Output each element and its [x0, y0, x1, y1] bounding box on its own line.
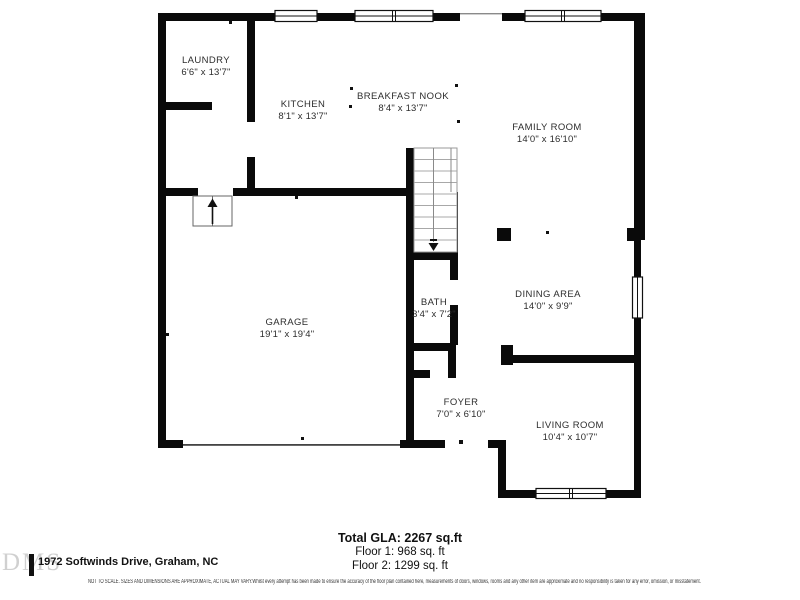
room-name: DINING AREA [515, 289, 581, 301]
logo-divider-bar [29, 554, 34, 576]
dimension-ticks [166, 21, 549, 444]
room-name: KITCHEN [278, 99, 327, 111]
room-label-bath: BATH 3'4" x 7'2" [412, 297, 456, 321]
room-label-family-room: FAMILY ROOM 14'0" x 16'10" [512, 122, 582, 146]
floor-plan-page: LAUNDRY 6'6" x 13'7" KITCHEN 8'1" x 13'7… [0, 0, 800, 600]
room-name: FAMILY ROOM [512, 122, 582, 134]
room-dims: 10'4" x 10'7" [536, 432, 604, 444]
room-name: LAUNDRY [181, 55, 230, 67]
garage-steps [193, 196, 232, 226]
room-label-breakfast-nook: BREAKFAST NOOK 8'4" x 13'7" [357, 91, 449, 115]
area-summary: Total GLA: 2267 sq.ft Floor 1: 968 sq. f… [338, 531, 462, 573]
floor2-area: Floor 2: 1299 sq. ft [338, 560, 462, 574]
property-address: 1972 Softwinds Drive, Graham, NC [38, 556, 218, 568]
room-dims: 3'4" x 7'2" [412, 309, 456, 321]
room-name: GARAGE [260, 317, 315, 329]
room-label-laundry: LAUNDRY 6'6" x 13'7" [181, 55, 230, 79]
front-door-tick [459, 440, 463, 444]
room-name: FOYER [436, 397, 485, 409]
room-name: LIVING ROOM [536, 420, 604, 432]
room-dims: 6'6" x 13'7" [181, 67, 230, 79]
room-dims: 7'0" x 6'10" [436, 409, 485, 421]
room-label-dining-area: DINING AREA 14'0" x 9'9" [515, 289, 581, 313]
disclaimer-text: NOT TO SCALE. SIZES AND DIMENSIONS ARE A… [88, 579, 701, 585]
floor1-area: Floor 1: 968 sq. ft [338, 546, 462, 560]
room-dims: 19'1" x 19'4" [260, 329, 315, 341]
room-dims: 14'0" x 9'9" [515, 301, 581, 313]
room-label-garage: GARAGE 19'1" x 19'4" [260, 317, 315, 341]
room-label-living-room: LIVING ROOM 10'4" x 10'7" [536, 420, 604, 444]
room-dims: 8'4" x 13'7" [357, 103, 449, 115]
floor-plan-drawing [0, 0, 800, 520]
garage-door-line [183, 444, 400, 446]
room-name: BATH [412, 297, 456, 309]
room-name: BREAKFAST NOOK [357, 91, 449, 103]
room-dims: 14'0" x 16'10" [512, 134, 582, 146]
room-dims: 8'1" x 13'7" [278, 111, 327, 123]
main-staircase [414, 148, 457, 252]
room-label-kitchen: KITCHEN 8'1" x 13'7" [278, 99, 327, 123]
total-gla: Total GLA: 2267 sq.ft [338, 531, 462, 546]
room-label-foyer: FOYER 7'0" x 6'10" [436, 397, 485, 421]
